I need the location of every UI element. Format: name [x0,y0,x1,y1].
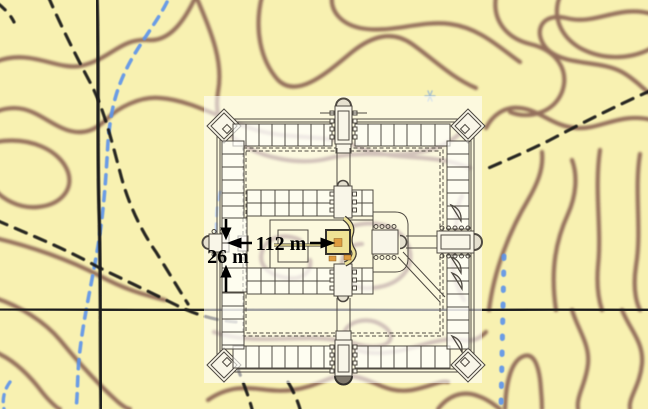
gallery-west-lower [222,293,244,349]
topographic-map: 112 m 26 m [0,0,648,409]
dimension-label-height: 26 m [207,246,249,268]
gallery-north-east [355,124,450,146]
dimension-label-width: 112 m [256,233,307,255]
gate-south-apse [335,376,352,385]
map-canvas: 112 m 26 m [0,0,648,409]
gallery-north-west [233,124,332,146]
gate-east-apse [474,234,482,250]
gallery-south-east [355,346,450,368]
gate-north-apse [336,99,351,106]
gallery-south-west [233,346,332,368]
sanctuary-marker [334,239,342,247]
